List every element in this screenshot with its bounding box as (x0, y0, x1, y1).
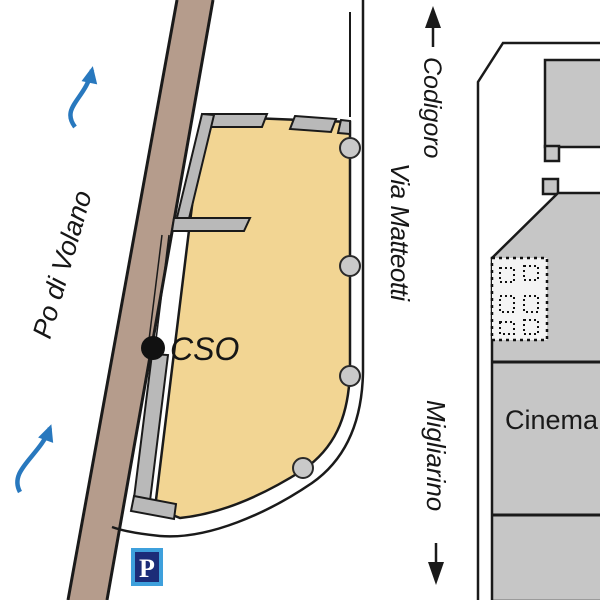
portico-dotted-area (492, 258, 547, 340)
wall-top-right (338, 120, 350, 134)
building-north (545, 60, 600, 147)
codigoro-label: Codigoro (418, 57, 446, 159)
tree-marker (293, 458, 313, 478)
wall-top-middle (290, 116, 336, 132)
map-canvas: Po di Volano CSO (0, 0, 600, 600)
building-strip (492, 193, 600, 600)
wall-inner-spur (172, 218, 250, 231)
building-strip-bump (543, 179, 558, 194)
tree-marker (340, 138, 360, 158)
migliarino-label: Migliarino (421, 400, 451, 511)
cinema-label: Cinema (505, 405, 599, 435)
parking-sign-icon: P (131, 548, 163, 586)
building-north-annex (545, 146, 559, 161)
parking-sign-letter: P (139, 554, 155, 583)
via-matteotti-label: Via Matteotti (385, 163, 415, 302)
site-map: Po di Volano CSO (0, 0, 600, 600)
cso-label: CSO (170, 331, 239, 367)
tree-marker (340, 256, 360, 276)
tree-marker (340, 366, 360, 386)
cso-entrance-dot (141, 336, 165, 360)
